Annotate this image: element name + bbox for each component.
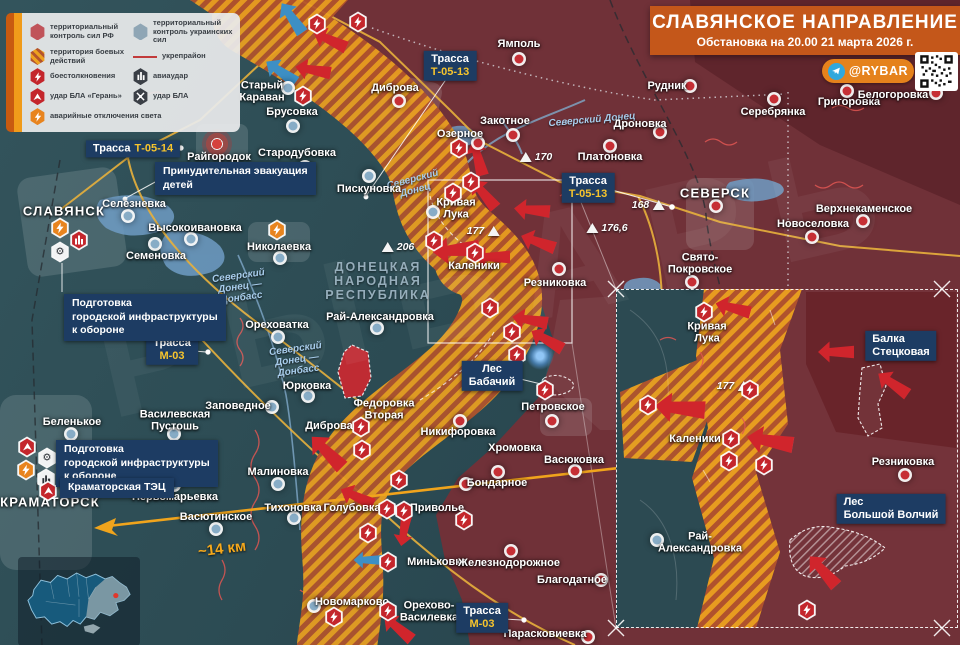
town-label: Приволье [410, 502, 464, 514]
town-label: Резниковка [524, 277, 587, 289]
outage-icon [17, 460, 36, 481]
town-marker [507, 547, 516, 556]
clash-glyph [505, 324, 520, 341]
avia_red-glyph [72, 232, 87, 249]
town-marker [515, 55, 524, 64]
town-marker [901, 471, 910, 480]
ua-attack-arrow [354, 552, 383, 569]
map-label-line: Большой Волчий [844, 509, 939, 522]
town-label: Никифоровка [421, 426, 496, 438]
town-label: Малиновка [248, 466, 309, 478]
ua-attack-arrow [273, 0, 311, 39]
clash-icon [481, 298, 500, 319]
town-label: Платоновка [578, 151, 643, 163]
map-label-box: ТрассаТ-05-13 [424, 51, 477, 81]
clash-icon [325, 607, 344, 628]
clash-glyph [538, 382, 553, 399]
town-label: Кривая Лука [687, 321, 726, 346]
clash-icon [639, 395, 658, 416]
legend-item-geran: удар БЛА «Герань» [30, 88, 131, 105]
town-label: Закотное [480, 115, 530, 127]
clash-icon [353, 440, 372, 461]
map-label-line: Лес [844, 496, 939, 509]
rybar-handle: @RYBAR [849, 64, 908, 78]
elevation-mark: 168 [632, 199, 665, 211]
town-marker [212, 525, 221, 534]
town-marker [555, 265, 564, 274]
clash-icon [379, 552, 398, 573]
map-label-text: Балка [872, 333, 905, 345]
map-label-line: Лес [469, 363, 516, 376]
clash-glyph [327, 609, 342, 626]
ua-control-icon [133, 23, 148, 40]
elevation-triangle-icon [586, 223, 598, 233]
town-marker [151, 240, 160, 249]
town-label: Каленики [669, 433, 721, 445]
river-label: Северский Донец — Донбасс [268, 340, 325, 380]
town-label: Стародубовка [258, 147, 336, 159]
map-label-text: Лес [482, 363, 502, 375]
rf-attack-arrow [818, 342, 854, 363]
town-label: Орехово- Василевка [400, 600, 458, 625]
city-label: СЕВЕРСК [680, 187, 750, 202]
legend-label: удар БЛА «Герань» [50, 92, 122, 101]
map-label-text: М-03 [159, 350, 184, 362]
elevation-mark: 170 [520, 151, 553, 163]
clash-icon [755, 455, 774, 476]
page-title: СЛАВЯНСКОЕ НАПРАВЛЕНИЕ [652, 12, 958, 34]
legend-item-ua-control: территориальный контроль украинских сил [133, 19, 234, 45]
clash-glyph [361, 525, 376, 542]
qr-code [915, 52, 958, 91]
airstrike-icon [133, 68, 148, 85]
map-label-text: Т-05-13 [569, 188, 608, 200]
annotation-box: Краматорская ТЭЦ [60, 478, 174, 498]
town-marker [606, 142, 615, 151]
clash-glyph [468, 245, 483, 262]
power-outage-icon [30, 108, 45, 125]
legend-item-airstrike: авиаудар [133, 68, 234, 85]
town-marker [284, 84, 293, 93]
clash-glyph [722, 453, 737, 470]
town-marker [124, 212, 133, 221]
city-label: СЛАВЯНСК [23, 205, 105, 220]
town-marker [688, 278, 697, 287]
map-label-text: Большой Волчий [844, 509, 939, 521]
legend-item-uav: удар БЛА [133, 88, 234, 105]
clash-glyph [354, 419, 369, 436]
map-label-text: Трасса [431, 53, 469, 65]
rf-attack-arrow [513, 198, 551, 222]
avia_red-icon [70, 230, 89, 251]
clash-glyph [310, 16, 325, 33]
map-label-line: Бабачий [469, 376, 516, 389]
map-screenshot: РЫБАРЬ ЯмпольСтарый КараванБрусовкаДибро… [0, 0, 960, 645]
region-label: ДОНЕЦКАЯ НАРОДНАЯ РЕСПУБЛИКА [325, 260, 431, 302]
town-label: Васютинское [180, 511, 252, 523]
geran-drone-icon [30, 88, 45, 105]
clash-icon [720, 451, 739, 472]
town-label: Хромовка [488, 442, 542, 454]
elevation-mark: 176,6 [586, 222, 627, 234]
map-label-text: Стецковая [872, 346, 929, 358]
clash-icon [450, 138, 469, 159]
legend-item-clashes: боестолкновения [30, 68, 131, 85]
legend-label: территория боевых действий [50, 48, 131, 65]
map-label-text: Бабачий [469, 376, 516, 388]
town-label: Серебрянка [741, 106, 806, 118]
fortified-line-icon [133, 56, 157, 58]
town-marker [859, 217, 868, 226]
legend-accent-bar [6, 13, 22, 132]
location-dot [113, 593, 118, 598]
clash-glyph [355, 442, 370, 459]
town-label: Николаевка [247, 241, 311, 253]
outage-icon [268, 220, 287, 241]
town-label: Семеновка [126, 250, 186, 262]
town-marker [843, 87, 852, 96]
town-marker [509, 131, 518, 140]
town-label: Беленькое [43, 416, 102, 428]
clash-icon [798, 600, 817, 621]
town-marker [365, 172, 374, 181]
clash-glyph [464, 174, 479, 191]
rf-control-icon [30, 23, 45, 40]
uav-drone-icon [133, 88, 148, 105]
rf-attack-arrow [801, 549, 845, 594]
clash-icon [536, 380, 555, 401]
clash-glyph [381, 603, 396, 620]
town-label: Пискуновка [337, 183, 401, 195]
town-label: Василевская Пустошь [140, 409, 211, 434]
telegram-icon [828, 63, 845, 80]
ukraine-minimap [18, 557, 140, 645]
clash-glyph [641, 397, 656, 414]
map-label-text: Трасса [93, 142, 131, 154]
town-label: Диброва [305, 420, 353, 432]
town-label: Свято- Покровское [668, 252, 732, 277]
town-marker [274, 480, 283, 489]
map-label-box: ЛесБольшой Волчий [837, 494, 946, 524]
map-label-line: Трасса [569, 175, 608, 188]
town-label: Ямполь [498, 38, 541, 50]
town-marker [395, 97, 404, 106]
annotation-box: Подготовка городской инфраструктуры к об… [64, 294, 226, 341]
legend-label: удар БЛА [153, 92, 188, 101]
geran-glyph [41, 483, 56, 500]
elevation-triangle-icon [382, 242, 394, 252]
town-marker [770, 95, 779, 104]
legend-label: укрепрайон [162, 52, 206, 61]
town-label: Парасковиевка [503, 628, 586, 640]
town-marker [571, 467, 580, 476]
town-label: Брусовка [266, 106, 318, 118]
clash-glyph [697, 304, 712, 321]
clash-icon [349, 12, 368, 33]
town-label: Голубовка [324, 502, 381, 514]
clash-icon [294, 86, 313, 107]
town-label: Тихоновка [264, 502, 321, 514]
town-label: Диброва [371, 82, 419, 94]
clash-glyph [351, 14, 366, 31]
legend-label: боестолкновения [50, 72, 115, 81]
annotation-box: Принудительная эвакуация детей [155, 162, 316, 195]
town-label: Селезневка [102, 198, 166, 210]
title-subtitle: Обстановка на 20.00 21 марта 2026 г. [697, 35, 914, 49]
town-marker [548, 417, 557, 426]
rf-attack-arrow [745, 423, 796, 458]
rf-attack-arrow [654, 391, 707, 425]
clash-glyph [800, 602, 815, 619]
map-label-line: Т-05-13 [569, 188, 608, 201]
elevation-value: 176,6 [601, 222, 627, 234]
map-label-box: ЛесБабачий [462, 361, 523, 391]
town-label: Бондарное [467, 477, 528, 489]
town-label: Новомарково [315, 596, 389, 608]
geran-icon [18, 437, 37, 458]
map-label-text: Лес [844, 496, 864, 508]
rf-attack-arrow [872, 365, 914, 403]
town-label: Высокоивановка [148, 222, 242, 234]
clash-glyph [446, 185, 461, 202]
outage-icon [51, 218, 70, 239]
elevation-value: 177 [717, 380, 735, 392]
elevation-value: 177 [467, 225, 485, 237]
legend-panel: территориальный контроль сил РФ территор… [22, 13, 240, 132]
rybar-badge[interactable]: @RYBAR [822, 59, 914, 83]
map-label-line: Т-05-13 [431, 66, 470, 79]
clash-glyph [397, 503, 412, 520]
town-label: Васюковка [544, 454, 604, 466]
town-label: Петровское [521, 401, 585, 413]
gear-icon: ⚙ [51, 242, 70, 263]
map-label-line: Балка [872, 333, 929, 346]
town-label: Верхнекаменское [816, 203, 912, 215]
map-label-box: ТрассаМ-03 [456, 603, 508, 633]
town-label: Рудник [647, 80, 686, 92]
clash-icon [722, 429, 741, 450]
map-label-line: М-03 [463, 618, 501, 631]
combat-zone-icon [30, 48, 45, 65]
town-marker [494, 468, 503, 477]
legend-item-combat-zone: территория боевых действий [30, 48, 131, 65]
town-label: Заповедное [205, 400, 271, 412]
elevation-mark: 206 [382, 241, 415, 253]
rf-attack-arrow [303, 428, 351, 476]
elevation-mark: 177 [467, 225, 500, 237]
outage-glyph [270, 222, 285, 239]
town-marker [289, 122, 298, 131]
clash-glyph [296, 88, 311, 105]
town-marker [276, 254, 285, 263]
gear-icon: ⚙ [38, 448, 57, 469]
legend-label: территориальный контроль украинских сил [153, 19, 234, 45]
town-label: Рай- Александровка [658, 531, 742, 556]
map-label-text: Т-05-14 [135, 142, 174, 154]
map-label-line: М-03 [153, 350, 191, 363]
map-label-line: Стецковая [872, 346, 929, 359]
elevation-value: 168 [632, 199, 650, 211]
town-marker [187, 235, 196, 244]
town-marker [373, 324, 382, 333]
map-label-line: ТрассаТ-05-14 [93, 142, 173, 155]
outage-glyph [19, 462, 34, 479]
rf-attack-arrow [517, 226, 558, 258]
town-label: Юрковка [283, 380, 332, 392]
map-label-line: Трасса [431, 53, 470, 66]
geran-glyph [20, 439, 35, 456]
title-bar: СЛАВЯНСКОЕ НАПРАВЛЕНИЕ Обстановка на 20.… [650, 6, 960, 55]
town-marker [808, 233, 817, 242]
town-marker [686, 82, 695, 91]
legend-item-fortified: укрепрайон [133, 48, 234, 65]
legend-item-outage: аварийные отключения света [30, 108, 234, 125]
elevation-value: 206 [397, 241, 415, 253]
map-label-box: ТрассаТ-05-14 [86, 140, 180, 157]
clash-glyph [724, 431, 739, 448]
clash-glyph [381, 554, 396, 571]
town-marker [274, 333, 283, 342]
town-label: Новоселовка [777, 218, 849, 230]
town-marker [290, 514, 299, 523]
map-label-line: Трасса [463, 605, 501, 618]
map-label-text: Т-05-13 [431, 66, 470, 78]
legend-item-rf-control: территориальный контроль сил РФ [30, 19, 131, 45]
clash-glyph [427, 233, 442, 250]
town-label: Благодатное [537, 574, 607, 586]
town-label: Железнодорожное [458, 557, 560, 569]
legend-label: территориальный контроль сил РФ [50, 23, 131, 40]
map-label-text: Трасса [463, 605, 501, 617]
clash-icon [390, 470, 409, 491]
gear-glyph: ⚙ [53, 244, 68, 261]
clash-glyph [392, 472, 407, 489]
town-marker [67, 430, 76, 439]
gear-glyph: ⚙ [40, 450, 55, 467]
town-marker [456, 417, 465, 426]
rf-attack-arrow [293, 57, 332, 84]
town-marker [304, 392, 313, 401]
map-label-text: М-03 [469, 618, 494, 630]
map-label-text: Трасса [569, 175, 607, 187]
clash-glyph [457, 512, 472, 529]
elevation-triangle-icon [487, 226, 499, 236]
rf-attack-arrow [713, 293, 753, 323]
town-marker [712, 202, 721, 211]
clash-glyph [380, 501, 395, 518]
town-label: Ореховатка [245, 319, 309, 331]
outage-glyph [53, 220, 68, 237]
elevation-triangle-icon [652, 200, 664, 210]
map-label-box: ТрассаТ-05-13 [562, 173, 615, 203]
clash-icon [359, 523, 378, 544]
legend-label: аварийные отключения света [50, 112, 161, 121]
legend-label: авиаудар [153, 72, 188, 81]
town-label: Резниковка [872, 456, 935, 468]
clash-icon [695, 302, 714, 323]
elevation-value: 170 [535, 151, 553, 163]
clash-glyph [483, 300, 498, 317]
clash-glyph [743, 382, 758, 399]
clash-glyph [452, 140, 467, 157]
map-label-box: БалкаСтецковая [865, 331, 936, 361]
clash-glyph [757, 457, 772, 474]
town-label: Старый Караван [239, 80, 284, 105]
town-label: Рай-Александровка [326, 311, 434, 323]
town-label: Дроновка [613, 118, 666, 130]
clashes-icon [30, 68, 45, 85]
elevation-triangle-icon [520, 152, 532, 162]
